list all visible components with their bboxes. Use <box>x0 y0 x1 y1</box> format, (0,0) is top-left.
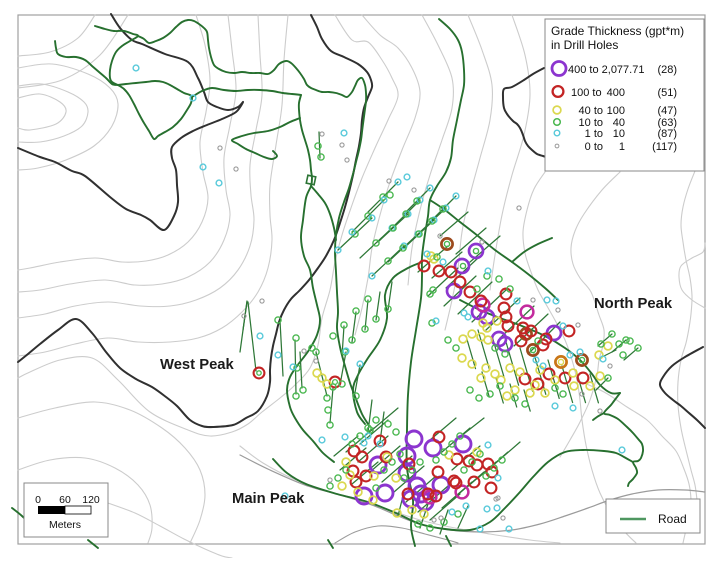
svg-text:400: 400 <box>607 87 625 99</box>
svg-text:1: 1 <box>619 141 625 153</box>
svg-text:(47): (47) <box>657 105 677 117</box>
svg-text:100: 100 <box>607 105 625 117</box>
svg-text:Grade Thickness (gpt*m): Grade Thickness (gpt*m) <box>551 24 684 38</box>
svg-text:West Peak: West Peak <box>160 357 235 373</box>
svg-text:North Peak: North Peak <box>594 296 673 312</box>
svg-text:(87): (87) <box>657 128 677 140</box>
svg-text:(117): (117) <box>652 141 677 153</box>
svg-text:100 to: 100 to <box>571 87 602 99</box>
svg-text:40 to: 40 to <box>579 105 603 117</box>
svg-text:in Drill Holes: in Drill Holes <box>551 38 618 52</box>
svg-text:Main Peak: Main Peak <box>232 491 305 507</box>
svg-text:1 to: 1 to <box>585 128 603 140</box>
svg-text:60: 60 <box>59 494 71 506</box>
svg-text:0: 0 <box>35 494 41 506</box>
svg-text:(28): (28) <box>657 64 677 76</box>
svg-text:400 to 2,077.71: 400 to 2,077.71 <box>568 64 644 76</box>
svg-text:Meters: Meters <box>49 519 81 531</box>
svg-text:120: 120 <box>82 494 100 506</box>
svg-text:10: 10 <box>613 128 625 140</box>
svg-text:(51): (51) <box>657 87 677 99</box>
svg-text:Road: Road <box>658 512 687 526</box>
svg-text:0 to: 0 to <box>585 141 603 153</box>
